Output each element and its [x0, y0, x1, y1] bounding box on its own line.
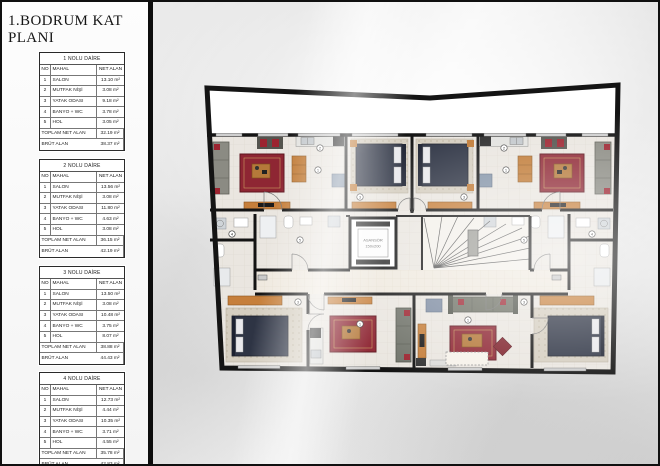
col-header-no: NO	[40, 279, 51, 290]
coffee-table	[462, 334, 482, 347]
cell-net: 3.78 m²	[97, 107, 124, 118]
col-header-no: NO	[40, 172, 51, 183]
elevator-label-line1: ASANSÖR	[363, 238, 383, 243]
brut-value: 42.83 m²	[97, 459, 124, 466]
cell-no: 5	[40, 118, 51, 129]
stove	[480, 136, 491, 146]
tv	[420, 334, 425, 347]
tv	[258, 203, 274, 207]
cell-no: 4	[40, 107, 51, 118]
basin	[300, 217, 312, 225]
cell-net: 13.50 m²	[97, 290, 124, 301]
cell-mahal: HOL	[51, 225, 97, 236]
cell-no: 3	[40, 97, 51, 108]
cell-net: 4.55 m²	[97, 438, 124, 449]
cell-net: 10.35 m²	[97, 417, 124, 428]
coffee-table	[342, 326, 360, 339]
side-table	[426, 299, 442, 312]
toplam-value: 38.88 m²	[97, 343, 124, 354]
cell-mahal: MUTFAK NİŞİ	[51, 86, 97, 97]
shower	[548, 216, 564, 238]
cell-net: 12.73 m²	[97, 396, 124, 407]
cell-mahal: HOL	[51, 332, 97, 343]
cell-mahal: HOL	[51, 438, 97, 449]
washer	[484, 216, 496, 227]
brut-label: BRÜT ALAN	[40, 353, 97, 364]
table-grid: NOMAHALNET ALAN1SALON13.56 m²2MUTFAK NİŞ…	[40, 172, 124, 257]
brut-value: 38.37 m²	[97, 139, 124, 150]
cell-no: 5	[40, 225, 51, 236]
cell-net: 9.18 m²	[97, 97, 124, 108]
tv	[342, 298, 356, 302]
brut-value: 44.43 m²	[97, 353, 124, 364]
cell-no: 4	[40, 427, 51, 438]
table-title: 2 NOLU DAİRE	[40, 160, 124, 172]
apartment-table: 3 NOLU DAİRE NOMAHALNET ALAN1SALON13.50 …	[39, 266, 125, 365]
pillow	[423, 167, 430, 183]
cell-no: 4	[40, 214, 51, 225]
fridge	[332, 174, 345, 187]
pillow	[423, 147, 430, 163]
shower	[260, 216, 276, 238]
cell-mahal: SALON	[51, 76, 97, 87]
cell-net: 8.07 m²	[97, 332, 124, 343]
cell-net: 3.08 m²	[97, 193, 124, 204]
elevator-label-line2: 150x200	[365, 244, 381, 249]
cabinet	[518, 156, 532, 182]
cell-mahal: YATAK ODASI	[51, 97, 97, 108]
table-title: 1 NOLU DAİRE	[40, 53, 124, 65]
cell-net: 3.75 m²	[97, 321, 124, 332]
cell-mahal: BANYO + WC	[51, 321, 97, 332]
cell-no: 5	[40, 332, 51, 343]
cell-net: 13.10 m²	[97, 76, 124, 87]
cell-mahal: BANYO + WC	[51, 214, 97, 225]
toilet	[600, 244, 609, 257]
stove	[333, 136, 344, 146]
toplam-label: TOPLAM NET ALAN	[40, 343, 97, 354]
cell-net: 4.44 m²	[97, 406, 124, 417]
cell-no: 1	[40, 76, 51, 87]
col-header-mahal: MAHAL	[51, 172, 97, 183]
page-title: 1.BODRUM KAT PLANI	[8, 13, 148, 47]
cell-mahal: BANYO + WC	[51, 427, 97, 438]
sofa	[396, 308, 411, 362]
coffee-table	[252, 164, 270, 178]
apartment-table: 4 NOLU DAİRE NOMAHALNET ALAN1SALON12.73 …	[39, 372, 125, 466]
elevator: ASANSÖR 150x200	[350, 218, 396, 268]
col-header-no: NO	[40, 385, 51, 396]
cell-no: 3	[40, 204, 51, 215]
panel-divider	[148, 0, 153, 466]
pillow	[592, 337, 599, 352]
col-header-net: NET ALAN	[97, 385, 124, 396]
table-title: 3 NOLU DAİRE	[40, 267, 124, 279]
toplam-label: TOPLAM NET ALAN	[40, 449, 97, 460]
apartment-table: 1 NOLU DAİRE NOMAHALNET ALAN1SALON13.10 …	[39, 52, 125, 151]
cell-no: 4	[40, 321, 51, 332]
basin	[234, 218, 248, 227]
toilet	[531, 216, 540, 228]
pillow	[236, 319, 243, 334]
shower	[594, 268, 610, 286]
fridge	[479, 174, 492, 187]
toplam-value: 35.78 m²	[97, 449, 124, 460]
toilet	[284, 216, 293, 228]
cell-net: 13.56 m²	[97, 183, 124, 194]
door-tag	[552, 275, 561, 280]
table-grid: NOMAHALNET ALAN1SALON13.50 m²2MUTFAK NİŞ…	[40, 279, 124, 364]
toplam-value: 32.19 m²	[97, 129, 124, 140]
cell-net: 3.71 m²	[97, 427, 124, 438]
col-header-net: NET ALAN	[97, 279, 124, 290]
col-header-no: NO	[40, 65, 51, 76]
cell-mahal: SALON	[51, 396, 97, 407]
cell-net: 3.05 m²	[97, 118, 124, 129]
cell-net: 3.08 m²	[97, 300, 124, 311]
cell-mahal: SALON	[51, 183, 97, 194]
dashed-area	[446, 352, 488, 365]
cell-no: 5	[40, 438, 51, 449]
col-header-mahal: MAHAL	[51, 279, 97, 290]
table-grid: NOMAHALNET ALAN1SALON12.73 m²2MUTFAK NİŞ…	[40, 385, 124, 466]
washer	[598, 218, 610, 229]
poster: 1.BODRUM KAT PLANI 1 NOLU DAİRE NOMAHALN…	[0, 0, 660, 466]
pillow	[394, 147, 401, 163]
corridor-floor	[255, 270, 568, 294]
cell-mahal: YATAK ODASI	[51, 204, 97, 215]
brut-value: 42.19 m²	[97, 246, 124, 257]
cell-no: 1	[40, 396, 51, 407]
cell-no: 2	[40, 300, 51, 311]
apartment-table: 2 NOLU DAİRE NOMAHALNET ALAN1SALON13.56 …	[39, 159, 125, 258]
toplam-label: TOPLAM NET ALAN	[40, 129, 97, 140]
toplam-label: TOPLAM NET ALAN	[40, 236, 97, 247]
cell-mahal: YATAK ODASI	[51, 417, 97, 428]
wardrobe	[228, 296, 282, 305]
col-header-mahal: MAHAL	[51, 385, 97, 396]
pillow	[394, 167, 401, 183]
cell-mahal: BANYO + WC	[51, 107, 97, 118]
cell-net: 3.08 m²	[97, 225, 124, 236]
cell-net: 3.08 m²	[97, 86, 124, 97]
cell-no: 3	[40, 417, 51, 428]
pillow	[236, 337, 243, 352]
cell-net: 11.80 m²	[97, 204, 124, 215]
col-header-net: NET ALAN	[97, 172, 124, 183]
coffee-table	[554, 164, 572, 178]
cell-net: 10.48 m²	[97, 311, 124, 322]
pillow	[592, 319, 599, 334]
stove	[310, 328, 321, 338]
col-header-net: NET ALAN	[97, 65, 124, 76]
cell-mahal: YATAK ODASI	[51, 311, 97, 322]
table-title: 4 NOLU DAİRE	[40, 373, 124, 385]
col-header-mahal: MAHAL	[51, 65, 97, 76]
cell-mahal: MUTFAK NİŞİ	[51, 406, 97, 417]
cell-mahal: SALON	[51, 290, 97, 301]
cell-no: 3	[40, 311, 51, 322]
washer	[328, 216, 340, 227]
tv	[550, 203, 566, 207]
door-tag	[258, 275, 267, 280]
basin	[576, 218, 590, 227]
cell-no: 2	[40, 406, 51, 417]
cell-no: 2	[40, 193, 51, 204]
cell-mahal: MUTFAK NİŞİ	[51, 300, 97, 311]
brut-label: BRÜT ALAN	[40, 139, 97, 150]
basin	[512, 217, 524, 225]
cell-mahal: HOL	[51, 118, 97, 129]
cell-no: 1	[40, 183, 51, 194]
table-grid: NOMAHALNET ALAN1SALON13.10 m²2MUTFAK NİŞ…	[40, 65, 124, 150]
brut-label: BRÜT ALAN	[40, 246, 97, 257]
cell-mahal: MUTFAK NİŞİ	[51, 193, 97, 204]
stove	[416, 358, 426, 366]
brut-label: BRÜT ALAN	[40, 459, 97, 466]
cell-no: 1	[40, 290, 51, 301]
wardrobe	[540, 296, 594, 305]
stair-newel	[468, 230, 478, 256]
floor-plan: ASANSÖR 150x200	[200, 78, 624, 390]
toplam-value: 36.15 m²	[97, 236, 124, 247]
cabinet	[292, 156, 306, 182]
cell-no: 2	[40, 86, 51, 97]
sink	[311, 350, 321, 358]
cell-net: 4.63 m²	[97, 214, 124, 225]
floor-plan-svg: ASANSÖR 150x200	[200, 78, 624, 390]
